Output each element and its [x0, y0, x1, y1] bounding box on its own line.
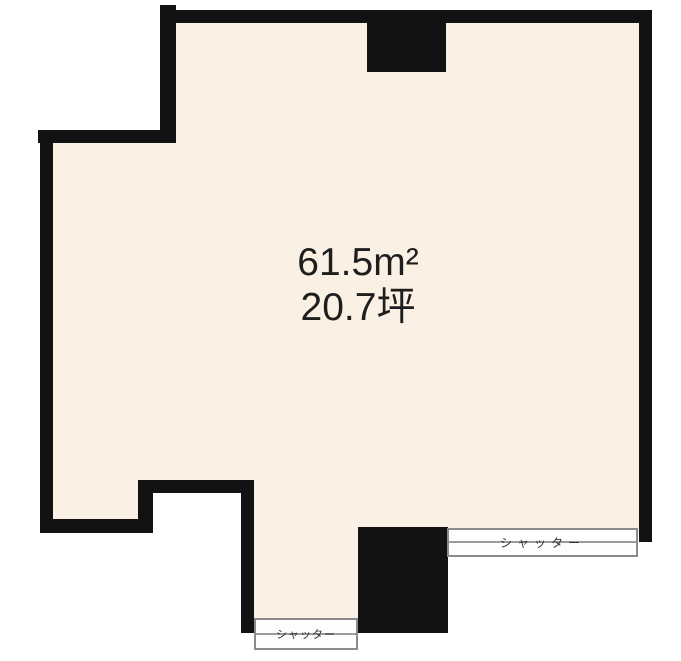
- shutter-bottom-label: シャッター: [276, 626, 336, 642]
- shutter-right-label: シャッター: [500, 534, 585, 551]
- area-tsubo: 20.7坪: [230, 285, 486, 330]
- wall-left: [40, 130, 53, 533]
- wall-step-bottomleft-horizontal: [138, 480, 254, 493]
- wall-step-topleft-vertical: [160, 5, 176, 143]
- shutter-bottom: シャッター: [254, 618, 358, 650]
- area-square-meters: 61.5m²: [230, 240, 486, 285]
- wall-bottom-left: [40, 519, 153, 533]
- pillar-bottom: [358, 527, 448, 633]
- wall-bottom-center-vertical: [241, 480, 254, 633]
- floor-plan: 61.5m² 20.7坪 シャッター シャッター: [0, 0, 681, 661]
- wall-step-topleft-horizontal: [38, 130, 176, 143]
- area-label: 61.5m² 20.7坪: [230, 240, 486, 330]
- floor-plan-drawing: [0, 0, 681, 661]
- shutter-right: シャッター: [447, 528, 638, 557]
- wall-right: [639, 10, 652, 542]
- pillar-top: [367, 10, 446, 72]
